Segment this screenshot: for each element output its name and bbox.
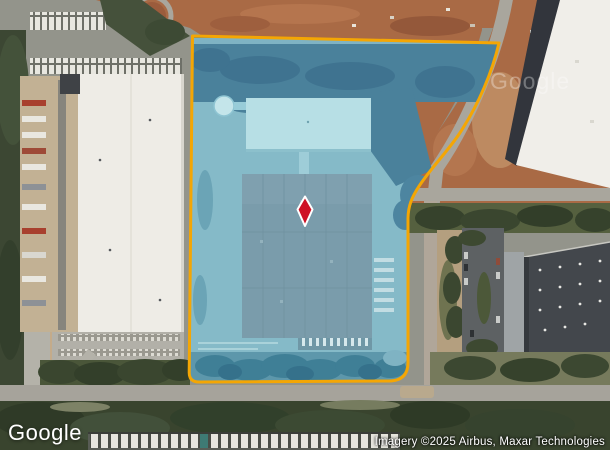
google-logo[interactable]: Google	[8, 420, 82, 446]
right-lower-block	[408, 203, 610, 386]
left-warehouse-building	[60, 74, 184, 332]
dark-roof-building	[504, 242, 610, 352]
trailer-yard-row	[88, 432, 400, 450]
parcel-landscaping	[190, 350, 408, 382]
map-canvas[interactable]: Google Google Imagery ©2025 Airbus, Maxa…	[0, 0, 610, 450]
south-dock-trailers	[298, 338, 372, 350]
left-tree-band	[38, 359, 198, 386]
office-parking-lot	[458, 228, 504, 357]
light-roof-building	[246, 98, 371, 152]
imagery-attribution: Imagery ©2025 Airbus, Maxar Technologies	[375, 436, 605, 448]
satellite-imagery	[0, 0, 610, 450]
left-industrial-area	[0, 12, 198, 450]
